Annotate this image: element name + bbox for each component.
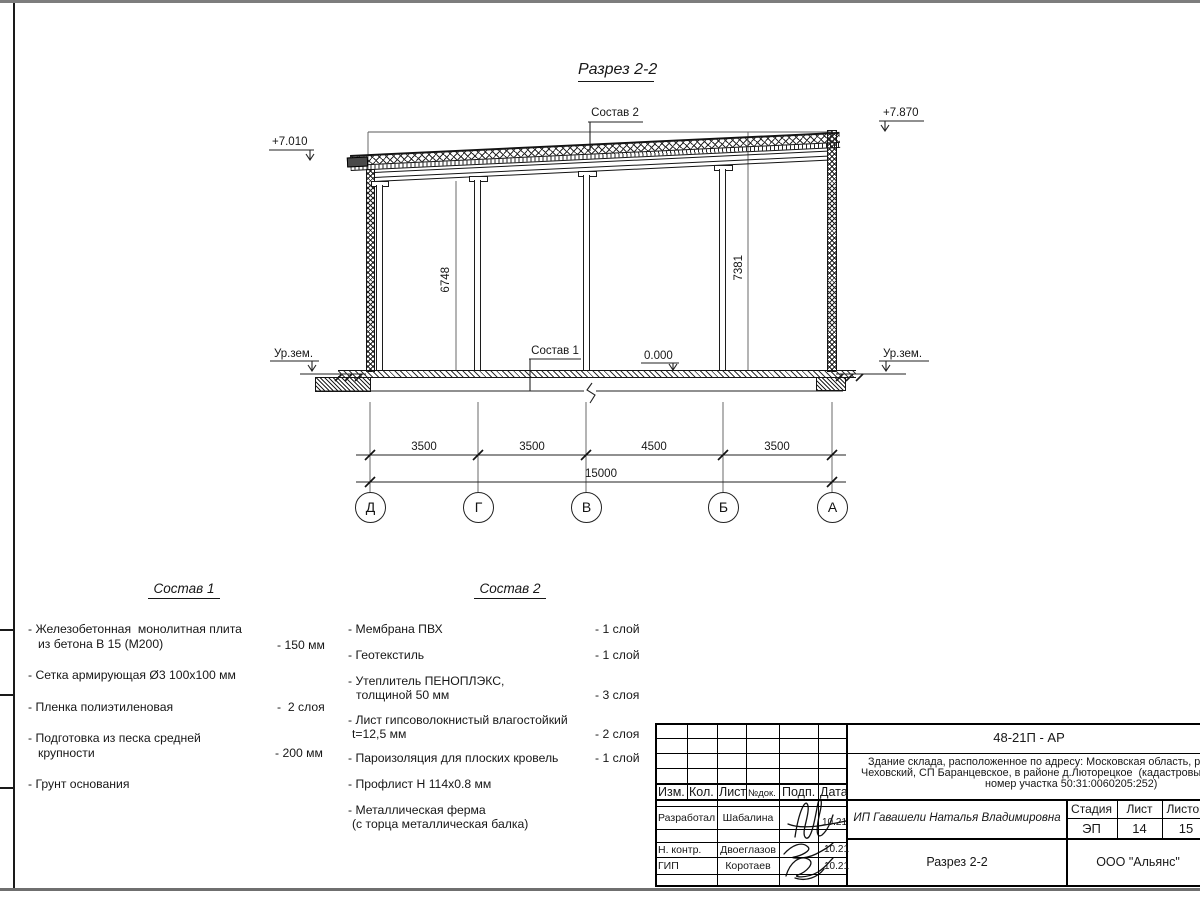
callout-sostav2: Состав 2 — [585, 107, 645, 121]
axis-mark: Г — [463, 492, 494, 523]
column-shaft — [376, 185, 383, 370]
tb-sheet-label: Лист — [1117, 802, 1162, 816]
tb-sheet-name: Разрез 2-2 — [848, 855, 1066, 870]
tb-customer: ИП Гавашели Наталья Владимировна — [848, 812, 1066, 826]
list-item-value: - 150 мм — [277, 638, 325, 652]
callout-sostav1: Состав 1 — [525, 345, 585, 359]
height-dim-left: 6748 — [440, 250, 454, 310]
tb-role: Н. контр. — [658, 844, 701, 856]
dim-segment: 3500 — [394, 441, 454, 455]
axis-letter: Г — [475, 499, 483, 515]
tb-sheet-value: 14 — [1117, 821, 1162, 836]
list-item: - Утеплитель ПЕНОПЛЭКС, — [348, 674, 504, 688]
list-item: - Геотекстиль — [348, 648, 424, 662]
tb-sheets-value: 15 — [1162, 821, 1200, 836]
tb-header-data: Дата — [820, 785, 848, 800]
axis-mark: А — [817, 492, 848, 523]
foundation-block-right — [816, 377, 846, 391]
drawing-sheet: { "drawing": { "title": "Разрез 2-2", "c… — [0, 0, 1200, 900]
list-item: - Мембрана ПВХ — [348, 622, 443, 636]
dim-total: 15000 — [571, 468, 631, 482]
tb-date: 10.21 — [822, 817, 847, 829]
list-item: - Лист гипсоволокнистый влагостойкий — [348, 713, 568, 727]
list-item: из бетона В 15 (М200) — [38, 637, 163, 651]
list-item: - Профлист Н 114х0.8 мм — [348, 777, 491, 791]
tb-role: Разработал — [658, 812, 715, 824]
tb-header-list: Лист — [719, 785, 746, 800]
list-item: - Пароизоляция для плоских кровель — [348, 751, 558, 765]
tb-header-podp: Подп. — [782, 785, 815, 800]
foundation-block-left — [315, 377, 371, 392]
list-item: - Сетка армирующая Ø3 100х100 мм — [28, 668, 236, 682]
tb-description-line3: номер участка 50:31:0060205:252) — [985, 778, 1157, 791]
column-shaft — [583, 175, 590, 370]
eave-end-plate — [347, 157, 368, 168]
extension-lines — [368, 132, 832, 492]
tb-name: Шабалина — [717, 812, 779, 824]
axis-mark: Б — [708, 492, 739, 523]
dim-segment: 4500 — [624, 441, 684, 455]
axis-mark: В — [571, 492, 602, 523]
list-item-value: - 1 слой — [595, 751, 640, 765]
dim-segment: 3500 — [747, 441, 807, 455]
tb-header-kol: Кол. — [689, 785, 714, 800]
column-shaft — [719, 169, 726, 370]
list-item-value: - 1 слой — [595, 648, 640, 662]
tb-role: ГИП — [658, 860, 679, 872]
list-item: - Пленка полиэтиленовая — [28, 700, 173, 714]
list-item: - Железобетонная монолитная плита — [28, 622, 242, 636]
list-item: (с торца металлическая балка) — [352, 817, 528, 831]
tb-name: Двоеглазов — [717, 844, 779, 856]
list-item-value: - 2 слоя — [277, 700, 325, 714]
list-item: толщиной 50 мм — [356, 688, 449, 702]
tb-header-izm: Изм. — [658, 785, 685, 800]
sostav2-title: Состав 2 — [474, 581, 546, 599]
elevation-zero: 0.000 — [644, 350, 673, 364]
column-shaft — [474, 180, 481, 370]
list-item: - Грунт основания — [28, 777, 129, 791]
tb-date: 10.21 — [824, 861, 849, 873]
list-item: крупности — [38, 746, 95, 760]
axis-letter: Б — [719, 499, 728, 515]
wall-right — [827, 130, 837, 372]
axis-mark: Д — [355, 492, 386, 523]
list-item: t=12,5 мм — [352, 727, 406, 741]
floor-slab — [338, 370, 856, 378]
ground-level-label-left: Ур.зем. — [274, 348, 313, 362]
dim-segment: 3500 — [502, 441, 562, 455]
ground-level-label-right: Ур.зем. — [883, 348, 922, 362]
tb-stage-label: Стадия — [1066, 802, 1117, 816]
tb-company: ООО "Альянс" — [1066, 855, 1200, 870]
elevation-left: +7.010 — [272, 136, 308, 150]
tb-header-ndok: №док. — [748, 788, 776, 799]
list-item-value: - 3 слоя — [595, 688, 639, 702]
axis-letter: В — [582, 499, 591, 515]
list-item-value: - 1 слой — [595, 622, 640, 636]
list-item: - Металлическая ферма — [348, 803, 486, 817]
tb-stage-value: ЭП — [1066, 821, 1117, 836]
list-item: - Подготовка из песка средней — [28, 731, 201, 745]
tb-doc-number: 48-21П - АР — [848, 730, 1200, 745]
wall-left — [366, 169, 375, 372]
axis-letter: Д — [366, 499, 375, 515]
list-item-value: - 2 слоя — [595, 727, 639, 741]
list-item-value: - 200 мм — [275, 746, 323, 760]
axis-letter: А — [828, 499, 837, 515]
tb-date: 10.21 — [824, 844, 849, 856]
tb-sheets-label: Листов — [1162, 802, 1200, 816]
sostav1-title: Состав 1 — [148, 581, 220, 599]
elevation-right: +7.870 — [883, 107, 919, 121]
tb-name: Коротаев — [717, 860, 779, 872]
height-dim-right: 7381 — [733, 238, 747, 298]
